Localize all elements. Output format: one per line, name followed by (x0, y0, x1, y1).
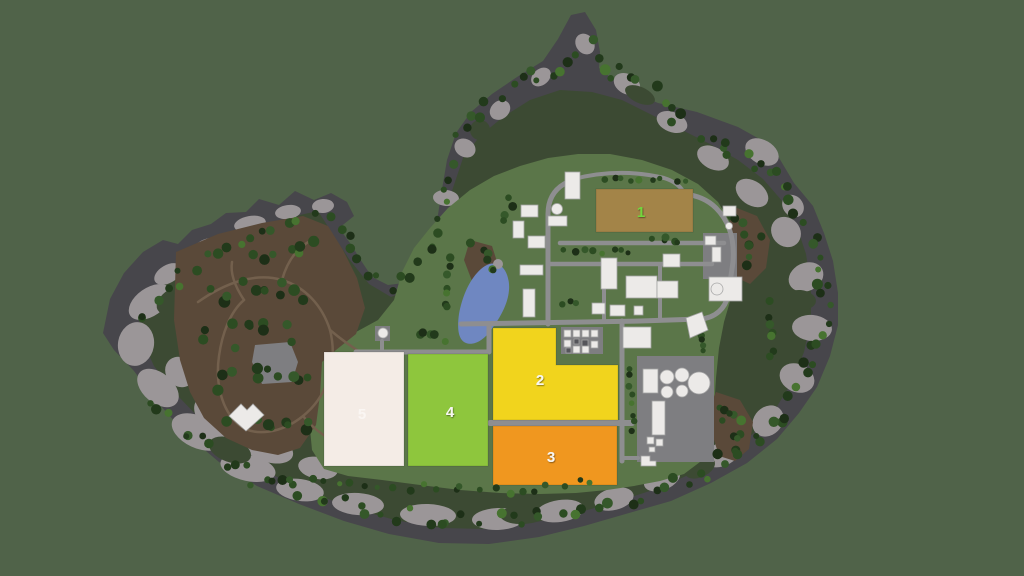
tree-icon (518, 521, 524, 527)
tree-icon (308, 236, 319, 247)
farm-map: 1 2 3 4 5 (0, 0, 1024, 576)
tree-icon (426, 520, 436, 530)
tree-icon (699, 336, 705, 342)
tree-icon (207, 285, 215, 293)
tree-icon (274, 372, 282, 380)
tree-icon (561, 247, 567, 253)
tree-icon (526, 66, 535, 75)
building (623, 327, 651, 348)
tree-icon (222, 243, 232, 253)
building (521, 205, 538, 217)
tree-icon (638, 498, 645, 505)
tree-icon (276, 291, 285, 300)
tree-icon (165, 409, 173, 417)
tree-icon (198, 334, 208, 344)
tree-icon (712, 449, 722, 459)
tree-icon (419, 328, 427, 336)
tree-icon (572, 248, 580, 256)
building (548, 216, 567, 226)
tree-icon (154, 296, 163, 305)
tree-icon (757, 160, 764, 167)
row-house (591, 341, 598, 348)
tree-icon (630, 413, 635, 418)
row-house (573, 330, 580, 337)
tree-icon (259, 254, 270, 265)
tree-icon (520, 73, 528, 81)
tree-icon (710, 135, 717, 142)
tree-icon (346, 479, 354, 487)
row-house (564, 340, 571, 347)
tree-icon (479, 97, 489, 107)
tree-icon (283, 320, 292, 329)
tree-icon (602, 498, 613, 509)
tree-icon (421, 481, 427, 487)
tree-icon (288, 284, 300, 296)
tree-icon (511, 81, 518, 88)
tree-icon (284, 421, 291, 428)
tree-icon (629, 500, 639, 510)
silo-icon (552, 204, 563, 215)
tree-icon (600, 64, 611, 75)
tree-icon (475, 112, 485, 122)
tree-icon (618, 247, 624, 253)
tree-icon (269, 251, 276, 258)
building (601, 258, 617, 289)
tree-icon (327, 212, 336, 221)
tree-icon (626, 250, 631, 255)
tree-icon (360, 509, 370, 519)
tree-icon (378, 512, 384, 518)
tree-icon (312, 210, 319, 217)
tree-icon (766, 320, 775, 329)
tree-icon (582, 246, 589, 253)
tree-icon (396, 272, 405, 281)
tree-icon (652, 81, 663, 92)
tree-icon (531, 489, 537, 495)
tree-icon (277, 278, 287, 288)
tree-icon (809, 361, 816, 368)
tree-icon (295, 241, 306, 252)
tree-icon (175, 268, 181, 274)
tree-icon (686, 481, 693, 488)
tree-icon (373, 272, 379, 278)
tree-icon (165, 285, 173, 293)
tree-icon (816, 289, 825, 298)
tree-icon (321, 498, 328, 505)
tree-icon (635, 176, 642, 183)
tree-icon (599, 251, 605, 257)
tree-icon (497, 508, 507, 518)
tree-icon (139, 313, 146, 320)
tree-icon (286, 476, 293, 483)
tree-icon (466, 239, 475, 248)
tree-icon (562, 483, 568, 489)
tree-icon (427, 245, 436, 254)
tree-icon (238, 241, 245, 248)
tree-icon (700, 342, 706, 348)
tree-icon (231, 460, 240, 469)
tree-icon (660, 483, 670, 493)
row-house (591, 330, 598, 337)
tree-icon (657, 176, 662, 181)
tree-icon (766, 297, 774, 305)
tree-icon (736, 416, 746, 426)
tree-icon (618, 176, 624, 182)
tree-icon (467, 111, 477, 121)
tree-icon (595, 54, 604, 63)
building (712, 247, 721, 262)
tree-icon (788, 209, 798, 219)
tree-icon (413, 257, 422, 266)
tree-icon (824, 282, 831, 289)
tree-icon (204, 250, 211, 257)
tree-icon (227, 367, 237, 377)
tree-icon (563, 57, 573, 67)
tree-icon (201, 326, 209, 334)
row-house-dark (566, 348, 571, 353)
tree-icon (346, 232, 354, 240)
tree-icon (757, 232, 765, 240)
tree-icon (783, 182, 792, 191)
tree-icon (246, 234, 254, 242)
barn (643, 369, 658, 393)
tree-icon (433, 228, 442, 237)
tree-icon (578, 477, 584, 483)
tree-icon (217, 370, 228, 381)
tree-icon (338, 225, 347, 234)
field-2-label[interactable]: 2 (536, 372, 544, 389)
tree-icon (449, 160, 458, 169)
tree-icon (304, 418, 312, 426)
tree-icon (508, 202, 517, 211)
tree-icon (674, 178, 681, 185)
tree-icon (826, 321, 832, 327)
tree-icon (626, 383, 633, 390)
tree-icon (745, 241, 754, 250)
tree-icon (292, 217, 300, 225)
tree-icon (264, 366, 271, 373)
silo-icon (675, 368, 689, 382)
tree-icon (726, 410, 732, 416)
tree-icon (783, 195, 794, 206)
tree-icon (457, 510, 465, 518)
tree-icon (364, 272, 373, 281)
tree-icon (568, 298, 574, 304)
building (523, 289, 535, 317)
tree-icon (650, 177, 656, 183)
tree-icon (447, 263, 454, 270)
tree-icon (589, 35, 598, 44)
tree-icon (738, 218, 747, 227)
tree-icon (392, 517, 401, 526)
tree-icon (204, 439, 214, 449)
tree-icon (704, 476, 711, 483)
tree-icon (697, 469, 705, 477)
tree-icon (733, 450, 743, 460)
building (513, 221, 524, 238)
tree-icon (780, 414, 789, 423)
tree-icon (199, 433, 206, 440)
tree-icon (519, 488, 526, 495)
tree-icon (375, 485, 380, 490)
field-1-label[interactable]: 1 (637, 204, 645, 221)
tree-icon (405, 273, 415, 283)
tree-icon (792, 383, 801, 392)
tree-icon (721, 138, 730, 147)
tree-icon (309, 475, 317, 483)
tree-icon (183, 433, 189, 439)
tree-icon (507, 490, 515, 498)
tree-icon (243, 462, 250, 469)
tree-icon (249, 250, 258, 259)
tree-icon (542, 482, 549, 489)
tree-icon (626, 371, 632, 377)
tree-icon (505, 194, 512, 201)
tree-icon (649, 236, 655, 242)
tree-icon (147, 400, 153, 406)
tree-icon (259, 228, 266, 235)
tree-icon (559, 509, 567, 517)
tree-icon (811, 339, 820, 348)
tree-icon (675, 108, 686, 119)
tree-icon (616, 63, 623, 70)
row-house (573, 346, 580, 353)
tree-icon (227, 318, 238, 329)
tree-icon (287, 338, 295, 346)
row-house (582, 346, 589, 353)
tree-icon (434, 216, 440, 222)
tree-icon (571, 510, 581, 520)
tree-icon (765, 314, 772, 321)
row-house-dark (582, 340, 588, 346)
tree-icon (244, 320, 253, 329)
tree-icon (589, 247, 596, 254)
tree-icon (534, 512, 542, 520)
tree-icon (697, 135, 705, 143)
building (705, 236, 716, 245)
tree-icon (631, 418, 637, 424)
tree-icon (629, 392, 635, 398)
tree-icon (456, 483, 463, 490)
tree-icon (192, 266, 202, 276)
tree-icon (499, 95, 506, 102)
tree-icon (662, 233, 670, 241)
tree-icon (453, 132, 459, 138)
tree-icon (442, 338, 449, 345)
row-house (582, 330, 589, 337)
tree-icon (751, 166, 758, 173)
tree-icon (362, 483, 368, 489)
tree-icon (444, 199, 450, 205)
field-5-label[interactable]: 5 (358, 406, 366, 423)
tree-icon (222, 292, 231, 301)
shed (647, 437, 654, 444)
tree-icon (224, 463, 231, 470)
tree-icon (430, 330, 439, 339)
tree-icon (433, 486, 439, 492)
tree-icon (555, 67, 565, 77)
tree-icon (342, 494, 349, 501)
tree-icon (667, 118, 676, 127)
shed (649, 447, 655, 452)
tree-icon (533, 77, 539, 83)
tree-icon (252, 363, 263, 374)
building (723, 206, 736, 216)
tree-icon (477, 487, 483, 493)
tree-icon (493, 484, 500, 491)
tree-icon (444, 177, 452, 185)
tree-icon (358, 502, 365, 509)
tree-icon (719, 417, 725, 423)
barn (652, 401, 665, 435)
row-house-dark (574, 339, 579, 344)
tree-icon (221, 416, 232, 427)
tree-icon (753, 433, 759, 439)
tree-icon (212, 385, 223, 396)
tree-icon (490, 267, 496, 273)
tree-icon (723, 151, 731, 159)
tree-icon (683, 179, 688, 184)
tree-icon (443, 290, 450, 297)
tree-icon (288, 371, 299, 382)
tree-icon (668, 473, 678, 483)
tree-icon (559, 301, 565, 307)
tree-icon (266, 226, 275, 235)
tree-icon (500, 217, 507, 224)
tree-icon (443, 303, 450, 310)
tree-icon (721, 460, 729, 468)
tree-icon (298, 295, 308, 305)
tree-icon (631, 75, 640, 84)
field-4-label[interactable]: 4 (446, 404, 455, 421)
tree-icon (443, 271, 451, 279)
tree-icon (769, 417, 779, 427)
building (592, 303, 605, 314)
tree-icon (476, 521, 482, 527)
tree-icon (304, 374, 312, 382)
building (610, 305, 625, 316)
tree-icon (239, 277, 248, 286)
tree-icon (629, 400, 635, 406)
tree-icon (744, 149, 753, 158)
silo-icon (676, 385, 688, 397)
tree-icon (251, 285, 262, 296)
tree-icon (808, 239, 818, 249)
tree-icon (800, 219, 807, 226)
building (634, 306, 643, 315)
tree-icon (674, 240, 680, 246)
silo-icon (378, 328, 388, 338)
tree-icon (346, 244, 356, 254)
tree-icon (812, 279, 823, 290)
tree-icon (740, 231, 748, 239)
tree-icon (803, 368, 813, 378)
tree-icon (320, 478, 326, 484)
tree-icon (746, 254, 752, 260)
tree-icon (772, 167, 781, 176)
tree-icon (261, 287, 269, 295)
tree-icon (352, 254, 361, 263)
tree-icon (628, 178, 634, 184)
tree-icon (446, 253, 454, 261)
tree-icon (463, 124, 471, 132)
tree-icon (607, 75, 614, 82)
tree-icon (176, 283, 184, 291)
building (528, 236, 545, 248)
tree-icon (263, 419, 274, 430)
tree-icon (766, 353, 774, 361)
tree-icon (668, 104, 676, 112)
tree-icon (819, 331, 827, 339)
tree-icon (734, 435, 741, 442)
tree-icon (798, 357, 808, 367)
tree-icon (595, 504, 604, 513)
silo-icon (661, 386, 673, 398)
tree-icon (441, 187, 447, 193)
tree-icon (483, 256, 491, 264)
tree-icon (827, 302, 833, 308)
tree-icon (587, 480, 593, 486)
building (663, 254, 680, 267)
tree-icon (627, 366, 633, 372)
tree-icon (231, 344, 240, 353)
building (626, 276, 657, 298)
tree-icon (573, 300, 579, 306)
tree-icon (253, 373, 264, 384)
tank-icon (711, 283, 723, 295)
silo-icon (726, 223, 733, 230)
tree-icon (783, 391, 793, 401)
tree-icon (815, 267, 821, 273)
tree-icon (389, 287, 396, 294)
game-map-screen: 1 2 3 4 5 (0, 0, 1024, 576)
tree-icon (247, 482, 253, 488)
field-3-label[interactable]: 3 (547, 449, 555, 466)
tree-icon (337, 481, 342, 486)
tree-icon (767, 332, 775, 340)
building (520, 265, 543, 275)
big-silo-icon (688, 372, 710, 394)
building (657, 281, 678, 298)
tree-icon (278, 475, 288, 485)
tree-icon (269, 478, 276, 485)
tree-icon (817, 255, 823, 261)
shed (656, 439, 663, 446)
tree-icon (701, 348, 706, 353)
tree-icon (742, 260, 752, 270)
tree-icon (438, 520, 447, 529)
tree-icon (629, 428, 635, 434)
tree-icon (602, 176, 609, 183)
tree-icon (572, 51, 579, 58)
row-house (564, 330, 571, 337)
tree-icon (407, 487, 415, 495)
tree-icon (213, 248, 223, 258)
tree-icon (612, 247, 618, 253)
tree-icon (293, 491, 303, 501)
tree-icon (258, 325, 269, 336)
tree-icon (389, 484, 396, 491)
tree-icon (407, 505, 413, 511)
tree-icon (510, 512, 517, 519)
silo-icon (660, 370, 674, 384)
building (565, 172, 580, 199)
